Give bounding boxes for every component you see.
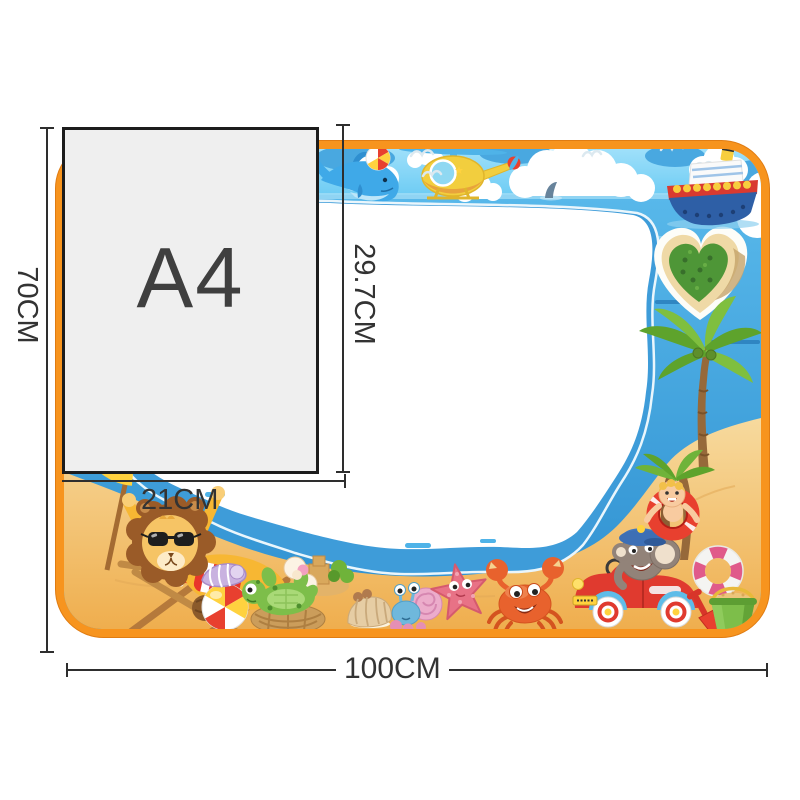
mat-height-dimension-line [46, 128, 48, 652]
paper-width-dimension-line [62, 480, 345, 482]
paper-width-right-cap [344, 474, 346, 488]
paper-height-label: 29.7CM [346, 229, 380, 359]
sun-glow [545, 144, 581, 180]
paper-width-label: 21CM [141, 484, 218, 517]
mat-width-left-cap [66, 663, 68, 677]
mat-height-label: 70CM [9, 245, 43, 365]
beach-ball-icon [202, 584, 248, 630]
paper-height-top-cap [336, 124, 350, 126]
paper-height-dimension-line [342, 125, 344, 472]
paper-height-bottom-cap [336, 471, 350, 473]
mat-width-right-cap [766, 663, 768, 677]
a4-label: A4 [137, 230, 245, 328]
mat-height-bottom-cap [40, 651, 54, 653]
small-beach-ball-icon [366, 146, 390, 170]
mat-height-top-cap [40, 127, 54, 129]
mat-width-label: 100CM [336, 652, 449, 686]
product-image: A4 70CM 29.7CM 21CM 100CM [0, 0, 800, 800]
a4-paper-overlay: A4 [62, 127, 319, 474]
